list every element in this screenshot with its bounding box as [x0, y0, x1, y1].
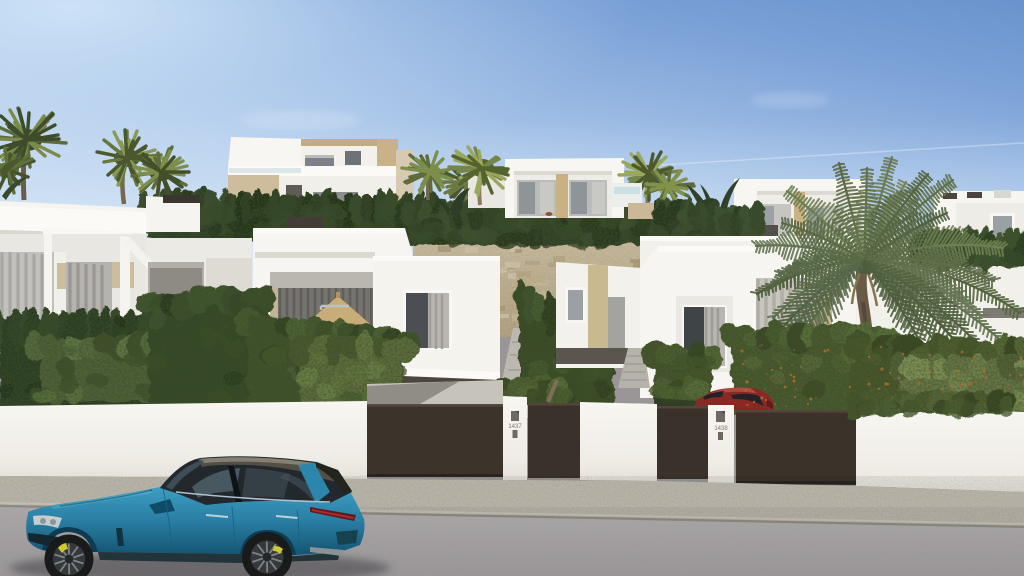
- svg-text:1437: 1437: [508, 424, 522, 430]
- svg-text:1438: 1438: [714, 426, 728, 432]
